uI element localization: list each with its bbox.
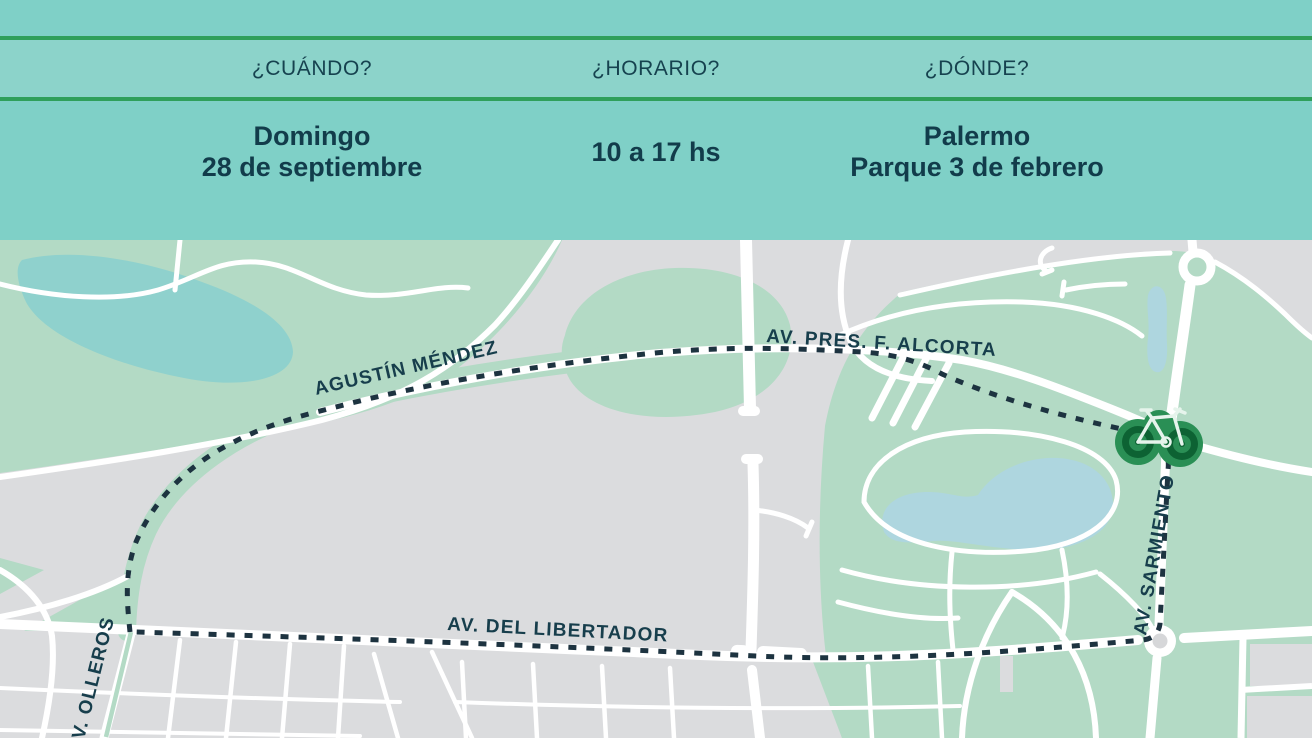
event-infographic: ¿CUÁNDO? ¿HORARIO? ¿DÓNDE? Domingo 28 de… [0,0,1312,738]
questions-row: ¿CUÁNDO? ¿HORARIO? ¿DÓNDE? [0,40,1312,97]
question-horario: ¿HORARIO? [592,40,720,97]
answer-cuando: Domingo 28 de septiembre [202,119,423,185]
answer-cuando-line1: Domingo [254,121,371,152]
answer-donde-line2: Parque 3 de febrero [850,152,1104,183]
answers-row: Domingo 28 de septiembre 10 a 17 hs Pale… [0,101,1312,240]
answer-horario-line1: 10 a 17 hs [591,137,720,168]
answer-donde: Palermo Parque 3 de febrero [850,119,1104,185]
pond-northeast [1147,286,1167,372]
question-donde: ¿DÓNDE? [925,40,1030,97]
answer-cuando-line2: 28 de septiembre [202,152,423,183]
answer-horario: 10 a 17 hs [591,119,720,185]
answer-donde-line1: Palermo [924,121,1031,152]
route-map: AGUSTÍN MÉNDEZ AV. PRES. F. ALCORTA AV. … [0,240,1312,738]
question-cuando: ¿CUÁNDO? [252,40,372,97]
